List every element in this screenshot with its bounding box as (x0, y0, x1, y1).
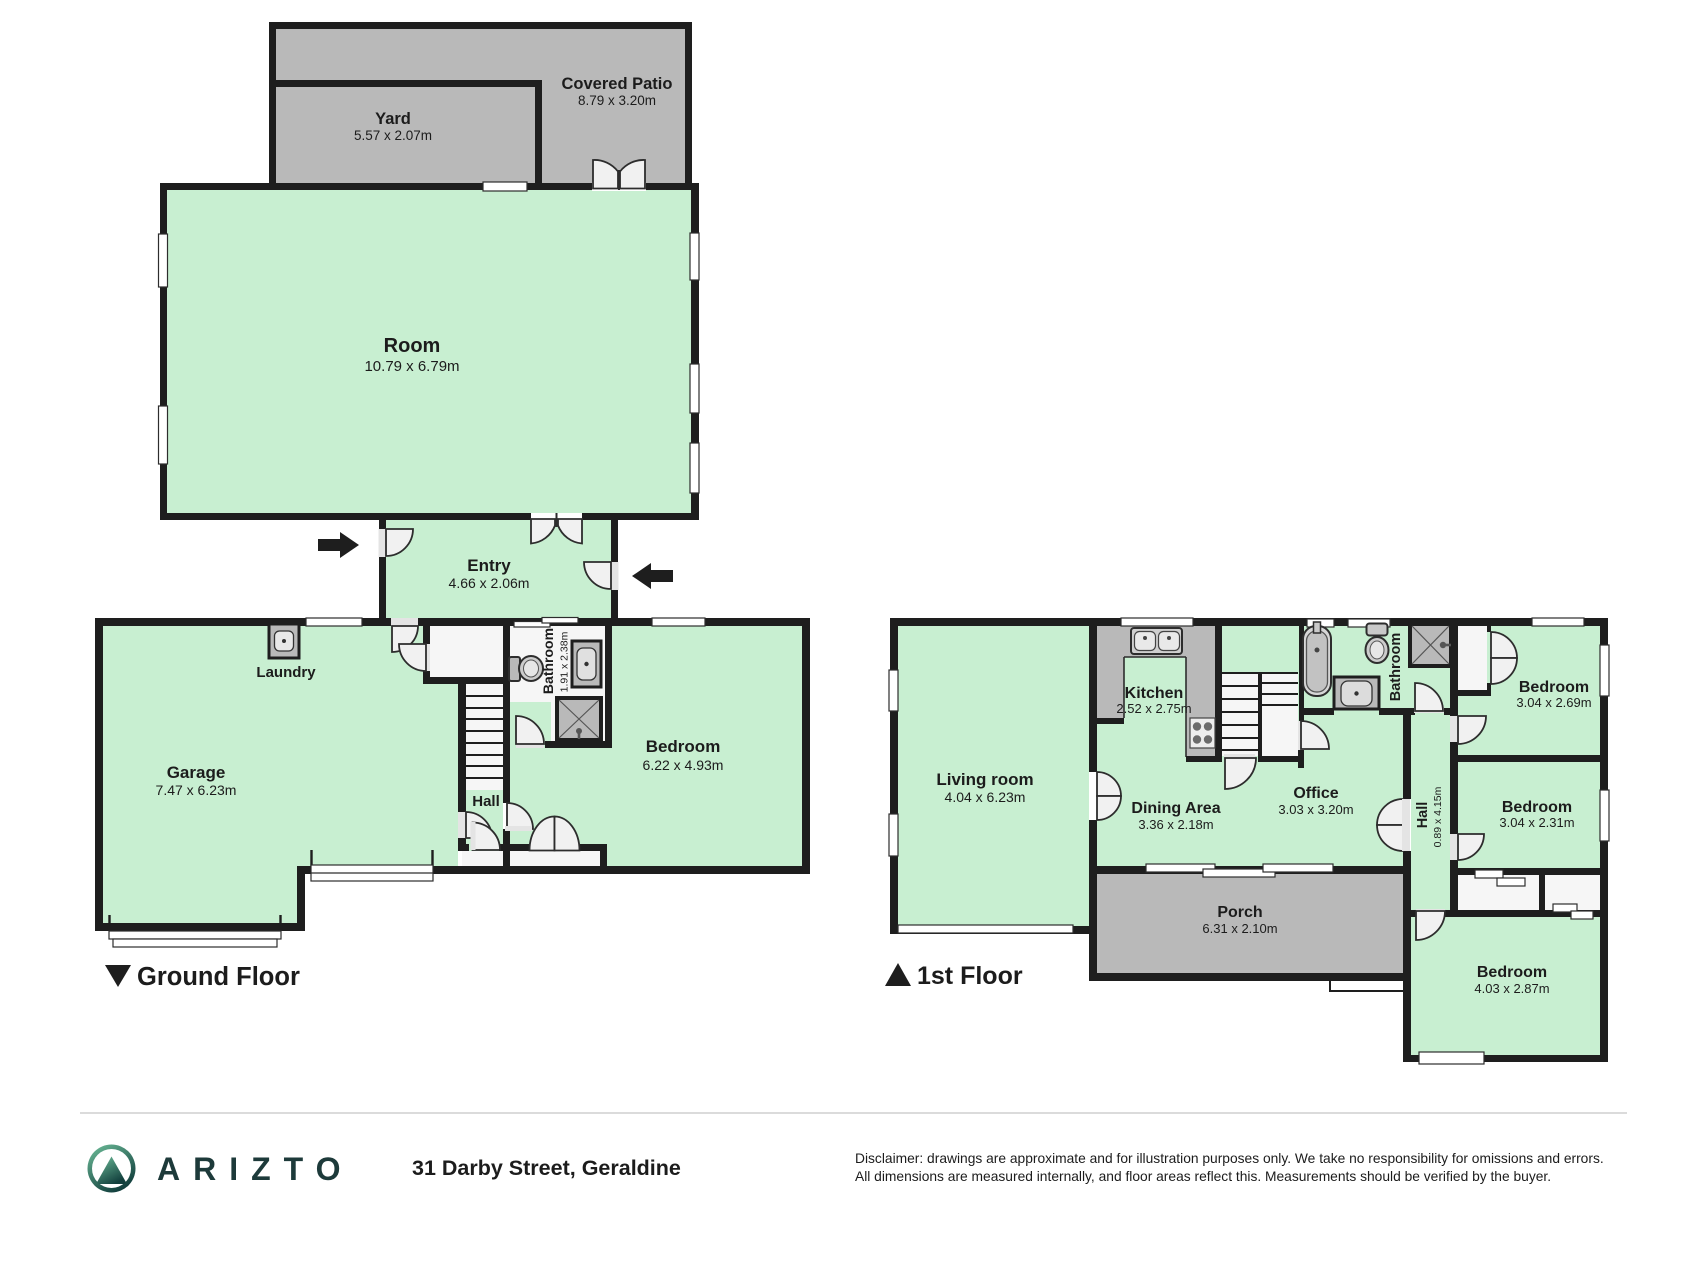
svg-text:10.79 x 6.79m: 10.79 x 6.79m (364, 358, 459, 375)
svg-text:Laundry: Laundry (256, 664, 316, 681)
svg-text:Living room: Living room (936, 770, 1033, 789)
svg-text:31 Darby Street, Geraldine: 31 Darby Street, Geraldine (412, 1156, 681, 1180)
svg-text:Hall: Hall (472, 793, 500, 810)
svg-text:3.03 x 3.20m: 3.03 x 3.20m (1278, 802, 1353, 817)
svg-text:Ground Floor: Ground Floor (137, 963, 300, 991)
svg-text:Dining Area: Dining Area (1131, 800, 1220, 817)
svg-text:3.04 x 2.31m: 3.04 x 2.31m (1499, 815, 1574, 830)
svg-text:Disclaimer: drawings are appro: Disclaimer: drawings are approximate and… (855, 1151, 1604, 1166)
svg-text:3.36 x 2.18m: 3.36 x 2.18m (1138, 817, 1213, 832)
svg-text:6.31 x 2.10m: 6.31 x 2.10m (1202, 921, 1277, 936)
svg-text:Room: Room (384, 335, 441, 357)
svg-text:Covered Patio: Covered Patio (562, 75, 673, 93)
svg-text:Garage: Garage (167, 763, 226, 782)
svg-text:Yard: Yard (375, 110, 411, 128)
svg-text:Porch: Porch (1217, 904, 1262, 921)
svg-text:2.52 x 2.75m: 2.52 x 2.75m (1116, 701, 1191, 716)
svg-text:ARIZTO: ARIZTO (157, 1151, 354, 1187)
svg-text:Bedroom: Bedroom (1477, 964, 1547, 981)
svg-text:4.03 x 2.87m: 4.03 x 2.87m (1474, 981, 1549, 996)
svg-text:4.04 x 6.23m: 4.04 x 6.23m (945, 789, 1026, 805)
svg-text:Hall: Hall (1415, 802, 1431, 829)
svg-text:Bedroom: Bedroom (1519, 679, 1589, 696)
svg-text:1st Floor: 1st Floor (917, 962, 1023, 990)
svg-text:0.89 x 4.15m: 0.89 x 4.15m (1432, 786, 1444, 847)
svg-text:6.22 x 4.93m: 6.22 x 4.93m (643, 757, 724, 773)
svg-text:Bathroom: Bathroom (1388, 633, 1404, 701)
svg-text:7.47 x 6.23m: 7.47 x 6.23m (156, 782, 237, 798)
svg-text:8.79 x 3.20m: 8.79 x 3.20m (578, 93, 656, 108)
svg-text:1.91 x 2.38m: 1.91 x 2.38m (559, 631, 571, 692)
svg-text:3.04 x 2.69m: 3.04 x 2.69m (1516, 695, 1591, 710)
svg-text:Bathroom: Bathroom (540, 628, 556, 694)
svg-text:All dimensions are measured in: All dimensions are measured internally, … (855, 1169, 1551, 1184)
svg-text:Entry: Entry (467, 556, 511, 575)
svg-text:Bedroom: Bedroom (1502, 799, 1572, 816)
svg-text:Bedroom: Bedroom (646, 737, 721, 756)
svg-text:5.57 x 2.07m: 5.57 x 2.07m (354, 128, 432, 143)
svg-text:Office: Office (1293, 785, 1338, 802)
svg-text:Kitchen: Kitchen (1125, 685, 1184, 702)
svg-text:4.66 x 2.06m: 4.66 x 2.06m (449, 575, 530, 591)
